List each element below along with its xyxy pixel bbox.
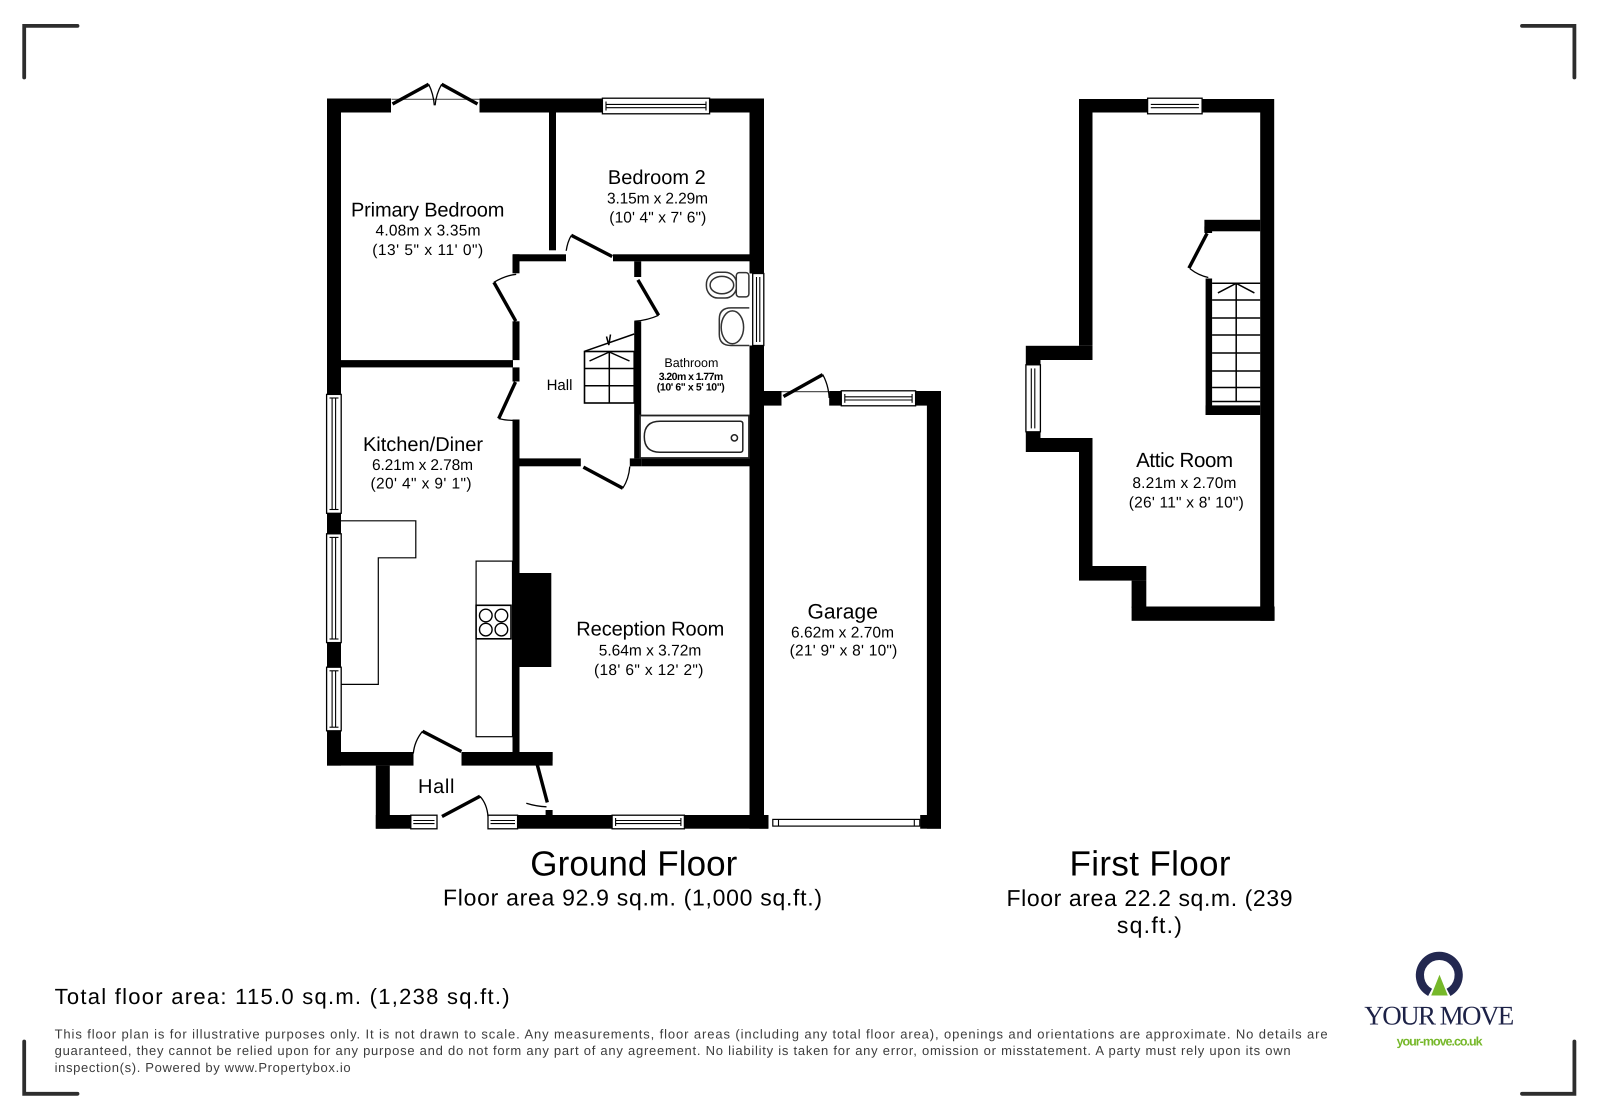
svg-text:Total floor area: 115.0 sq.m.: Total floor area: 115.0 sq.m. (1,238 sq.…	[55, 984, 510, 1009]
svg-text:Floor area 92.9 sq.m. (1,000 s: Floor area 92.9 sq.m. (1,000 sq.ft.)	[443, 885, 822, 911]
svg-text:(18' 6" x 12' 2"): (18' 6" x 12' 2")	[594, 662, 704, 679]
svg-text:This floor plan is for illustr: This floor plan is for illustrative purp…	[55, 1027, 1328, 1042]
svg-text:guaranteed, they cannot be rel: guaranteed, they cannot be relied upon f…	[55, 1043, 1291, 1058]
svg-text:Reception Room: Reception Room	[576, 619, 724, 641]
svg-text:4.08m x 3.35m: 4.08m x 3.35m	[376, 223, 481, 240]
svg-text:your-move.co.uk: your-move.co.uk	[1397, 1034, 1483, 1048]
svg-text:Bathroom: Bathroom	[664, 356, 718, 370]
svg-text:5.64m x 3.72m: 5.64m x 3.72m	[599, 642, 702, 659]
svg-text:inspection(s). Powered by www.: inspection(s). Powered by www.Propertybo…	[55, 1060, 351, 1075]
svg-text:Floor area 22.2 sq.m. (239: Floor area 22.2 sq.m. (239	[1007, 885, 1293, 911]
svg-text:(10' 4" x 7' 6"): (10' 4" x 7' 6")	[609, 210, 706, 227]
svg-text:(26' 11" x 8' 10"): (26' 11" x 8' 10")	[1129, 494, 1244, 511]
svg-text:Garage: Garage	[807, 600, 878, 623]
svg-text:Hall: Hall	[547, 377, 573, 394]
svg-text:First Floor: First Floor	[1070, 844, 1231, 883]
svg-text:Hall: Hall	[418, 776, 455, 798]
svg-text:sq.ft.): sq.ft.)	[1117, 912, 1182, 938]
svg-text:8.21m x 2.70m: 8.21m x 2.70m	[1132, 475, 1236, 492]
svg-text:3.15m x 2.29m: 3.15m x 2.29m	[607, 191, 708, 208]
svg-text:(13' 5" x 11' 0"): (13' 5" x 11' 0")	[372, 242, 483, 259]
svg-text:Bedroom 2: Bedroom 2	[608, 167, 706, 189]
svg-text:(21' 9" x 8' 10"): (21' 9" x 8' 10")	[790, 643, 898, 660]
svg-text:Attic Room: Attic Room	[1136, 449, 1233, 472]
svg-text:(20' 4" x 9' 1"): (20' 4" x 9' 1")	[371, 476, 472, 493]
svg-text:Kitchen/Diner: Kitchen/Diner	[363, 434, 483, 456]
svg-text:YOUR MOVE: YOUR MOVE	[1364, 1000, 1514, 1030]
svg-text:Primary Bedroom: Primary Bedroom	[351, 199, 505, 221]
svg-text:6.62m x 2.70m: 6.62m x 2.70m	[791, 624, 894, 641]
svg-text:6.21m x 2.78m: 6.21m x 2.78m	[372, 457, 473, 474]
svg-text:Ground Floor: Ground Floor	[530, 844, 737, 883]
svg-text:(10' 6" x 5' 10"): (10' 6" x 5' 10")	[657, 382, 725, 394]
